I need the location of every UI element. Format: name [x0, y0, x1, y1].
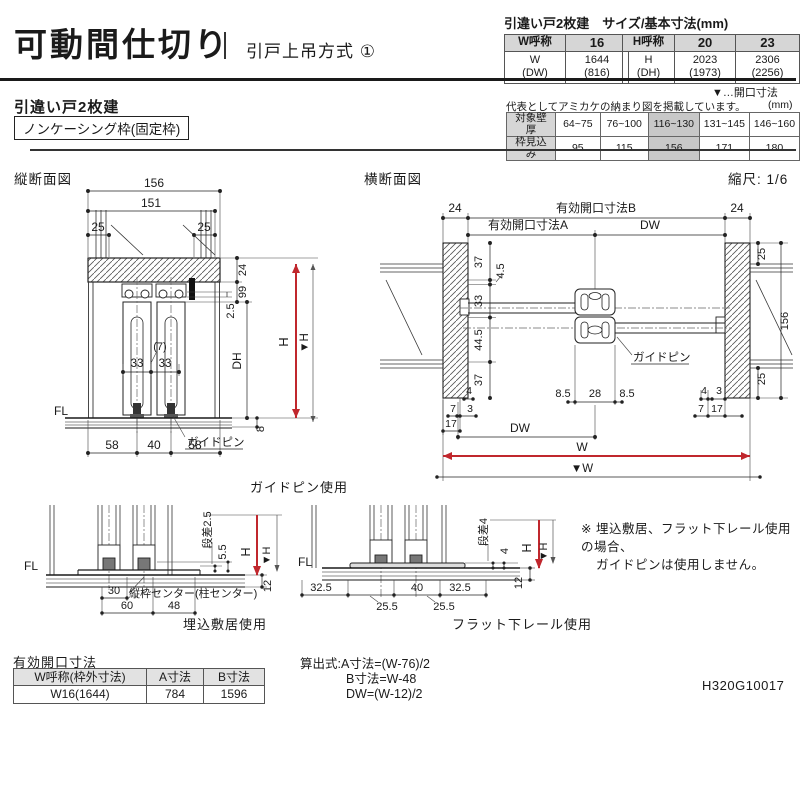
red-arrowhead-down [292, 409, 300, 418]
product-name: 引違い戸2枚建 [14, 96, 119, 117]
frame-type-label: ノンケーシング枠(固定枠) [14, 116, 189, 140]
hs-openA: 有効開口寸法A [488, 217, 568, 232]
hs-dim-8-5-l: 8.5 [555, 388, 570, 400]
note-line-2: ガイドピンは使用しません。 [581, 556, 796, 574]
opening-c3: 1596 [204, 686, 265, 703]
guide-pin-note: ※ 埋込敷居、フラット下レール使用の場合、 ガイドピンは使用しません。 [581, 520, 796, 574]
opening-c1: W16(1644) [14, 686, 147, 703]
left-jamb [443, 243, 468, 398]
vs-dim-dh: DH [230, 352, 244, 369]
vs-dim-156: 156 [144, 176, 164, 190]
door-hangers [122, 284, 186, 298]
sill-5-5: 5.5 [217, 544, 229, 559]
vs-dim-8: 8 [255, 426, 267, 432]
rail-32-5-left: 32.5 [310, 582, 331, 594]
header-beam [88, 258, 220, 282]
hs-dim-33: 33 [473, 295, 485, 307]
hs-dim-3-r: 3 [716, 385, 722, 397]
sill-30: 30 [108, 585, 120, 597]
formula-line-3: DW=(W-12)/2 [300, 687, 430, 702]
frame-type-box: ノンケーシング枠(固定枠) [14, 116, 189, 140]
hs-dim-w: W [576, 440, 588, 454]
meeting-stile-bracket [575, 289, 615, 343]
doc-code: H320G10017 [702, 678, 784, 693]
sill-h: H [239, 547, 253, 556]
hs-dim-37-top: 37 [473, 256, 485, 268]
size-h-head: H呼称 [623, 35, 675, 52]
sill-caption: 埋込敷居使用 [183, 614, 267, 633]
hs-dim-vw: ▼W [571, 463, 593, 475]
vs-dim-vh: ▼H [299, 333, 311, 353]
hs-dim-44-5: 44.5 [473, 329, 485, 350]
size-table-w: W呼称 16 W(DW) 1644(816) [504, 34, 629, 84]
hs-dw-top: DW [640, 218, 661, 232]
sill-60: 60 [121, 600, 133, 612]
rail-floor [322, 568, 520, 580]
sill-red-arrowhead [253, 566, 261, 576]
wall-table-unit: (mm) [768, 99, 793, 111]
vs-dim-33-right: 33 [159, 358, 172, 370]
horizontal-section-drawing: 24 有効開口寸法B 24 有効開口寸法A DW 37 4.5 33 44.5 … [360, 165, 800, 490]
opening-height-line [311, 264, 316, 422]
page-title: 可動間仕切り [14, 18, 230, 66]
hs-dim-4-r: 4 [701, 385, 707, 397]
hs-dim-7-l: 7 [450, 403, 456, 415]
rail-step: 段差4 [476, 518, 490, 546]
vertical-section-drawing: 156 151 25 25 24 99 2.5 DH H ▼H 8 (7) 33… [10, 165, 330, 465]
floor-lines [65, 418, 232, 428]
rail-vh-line [551, 520, 556, 564]
opening-c2: 784 [147, 686, 204, 703]
vs-guide-pin-label: ガイドピン [187, 436, 245, 449]
right-jamb [725, 243, 750, 398]
rail-door-bottoms [370, 540, 427, 563]
opening-table-row: W16(1644) 784 1596 [14, 686, 265, 703]
note-line-1: ※ 埋込敷居、フラット下レール使用の場合、 [581, 520, 796, 556]
left-jamb-fixture [460, 299, 469, 315]
opening-table: W呼称(枠外寸法) A寸法 B寸法 W16(1644) 784 1596 [13, 668, 265, 704]
hs-dim-17-l: 17 [445, 418, 457, 430]
size-w-head: W呼称 [505, 35, 566, 52]
size-table-title: 引違い戸2枚建 サイズ/基本寸法(mm) [504, 13, 728, 32]
hs-dim-4-l: 4 [466, 385, 472, 397]
sill-and-floor [46, 570, 245, 587]
vs-dim-24: 24 [237, 264, 249, 276]
vs-dim-7: (7) [153, 341, 166, 353]
rail-25-5-left: 25.5 [376, 601, 397, 613]
vs-dim-40: 40 [147, 438, 161, 452]
red-arrowhead-up [292, 264, 300, 273]
sill-door-bottoms [98, 545, 155, 570]
sill-center-note: 縦枠センター(柱センター) [129, 586, 257, 600]
vs-dim-25-right: 25 [197, 220, 211, 234]
hs-guide-pin-label: ガイドピン [633, 351, 691, 364]
vs-dim-h: H [276, 337, 291, 346]
vs-dim-25-left: 25 [91, 220, 105, 234]
opening-h3: B寸法 [204, 669, 265, 686]
hs-dim-4-5: 4.5 [495, 263, 507, 278]
hs-dim-24-right: 24 [730, 201, 744, 215]
hs-dw-bottom: DW [510, 421, 531, 435]
size-table-h: H呼称 20 23 H(DH) 2023(1973) 2306(2256) [622, 34, 800, 84]
sill-step: 段差2.5 [200, 511, 214, 548]
hs-dim-17-r: 17 [711, 403, 723, 415]
vs-dim-2-5: 2.5 [225, 303, 237, 318]
red-arrowhead-left [443, 452, 452, 460]
vertical-section-caption: ガイドピン使用 [250, 477, 348, 496]
vs-dim-58-left: 58 [105, 438, 119, 452]
wall-table: 対象壁厚 64~75 76~100 116~130 131~145 146~16… [506, 112, 800, 161]
vs-fl-label: FL [54, 404, 68, 418]
door-centerlines [137, 277, 171, 433]
rail-32-5-right: 32.5 [449, 582, 470, 594]
rail-vh: ▼H [538, 543, 550, 562]
rail-fl: FL [298, 555, 312, 569]
hs-dim-28: 28 [589, 388, 601, 400]
title-divider [224, 32, 226, 59]
vs-dim-99: 99 [237, 286, 249, 298]
rail-40: 40 [411, 582, 423, 594]
page-subtitle: 引戸上吊方式 ① [246, 37, 376, 62]
hs-dim-25-top: 25 [756, 248, 768, 260]
right-jamb-fixture [716, 317, 725, 333]
vs-dim-151: 151 [141, 196, 161, 210]
wall-studs [96, 210, 215, 258]
hs-dim-25-bot: 25 [756, 373, 768, 385]
opening-h2: A寸法 [147, 669, 204, 686]
guide-pins [130, 403, 178, 418]
rail-12: 12 [513, 577, 525, 589]
opening-table-header: W呼称(枠外寸法) A寸法 B寸法 [14, 669, 265, 686]
vs-dim-33-left: 33 [131, 358, 144, 370]
header-rule [0, 78, 796, 81]
opening-h1: W呼称(枠外寸法) [14, 669, 147, 686]
size-h-col-20: 20 [675, 35, 736, 52]
size-h-col-23: 23 [736, 35, 800, 52]
hs-dim-7-r: 7 [698, 403, 704, 415]
rail-caption: フラット下レール使用 [452, 614, 592, 633]
formula-line-1: 算出式:A寸法=(W-76)/2 [300, 657, 430, 672]
sill-fl: FL [24, 559, 38, 573]
wall-row-thickness: 対象壁厚 64~75 76~100 116~130 131~145 146~16… [507, 113, 800, 137]
sill-48: 48 [168, 600, 180, 612]
sill-vh-line [275, 515, 280, 572]
red-arrowhead-right [741, 452, 750, 460]
opening-legend: ▼…開口寸法 [712, 84, 778, 100]
hs-dim-24-left: 24 [448, 201, 462, 215]
sill-12: 12 [262, 580, 274, 592]
calc-formulas: 算出式:A寸法=(W-76)/2 B寸法=W-48 DW=(W-12)/2 [300, 657, 430, 702]
sill-vh: ▼H [261, 547, 273, 566]
subheader-rule [30, 149, 796, 151]
size-w-col: 16 [566, 35, 629, 52]
rail-h: H [520, 543, 534, 552]
hs-openB: 有効開口寸法B [556, 200, 636, 215]
rail-25-5-right: 25.5 [433, 601, 454, 613]
hs-dim-37-bot: 37 [473, 374, 485, 386]
rail-4: 4 [499, 548, 511, 554]
formula-line-2: B寸法=W-48 [300, 672, 430, 687]
hs-dim-156: 156 [779, 312, 791, 330]
hs-dim-3-l: 3 [467, 403, 473, 415]
vs-dim-labels: 156 151 25 25 24 99 2.5 DH H ▼H 8 (7) 33… [54, 176, 311, 452]
hs-dim-8-5-r: 8.5 [619, 388, 634, 400]
